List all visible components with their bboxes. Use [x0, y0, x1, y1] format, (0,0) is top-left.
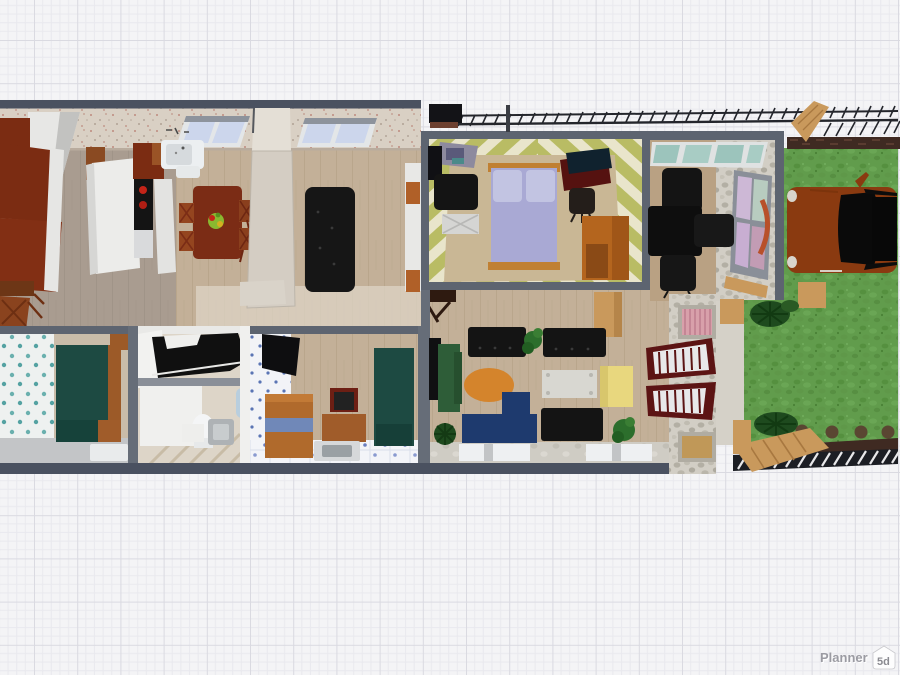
svg-text:5d: 5d: [877, 656, 890, 668]
svg-text:Planner: Planner: [820, 650, 868, 665]
